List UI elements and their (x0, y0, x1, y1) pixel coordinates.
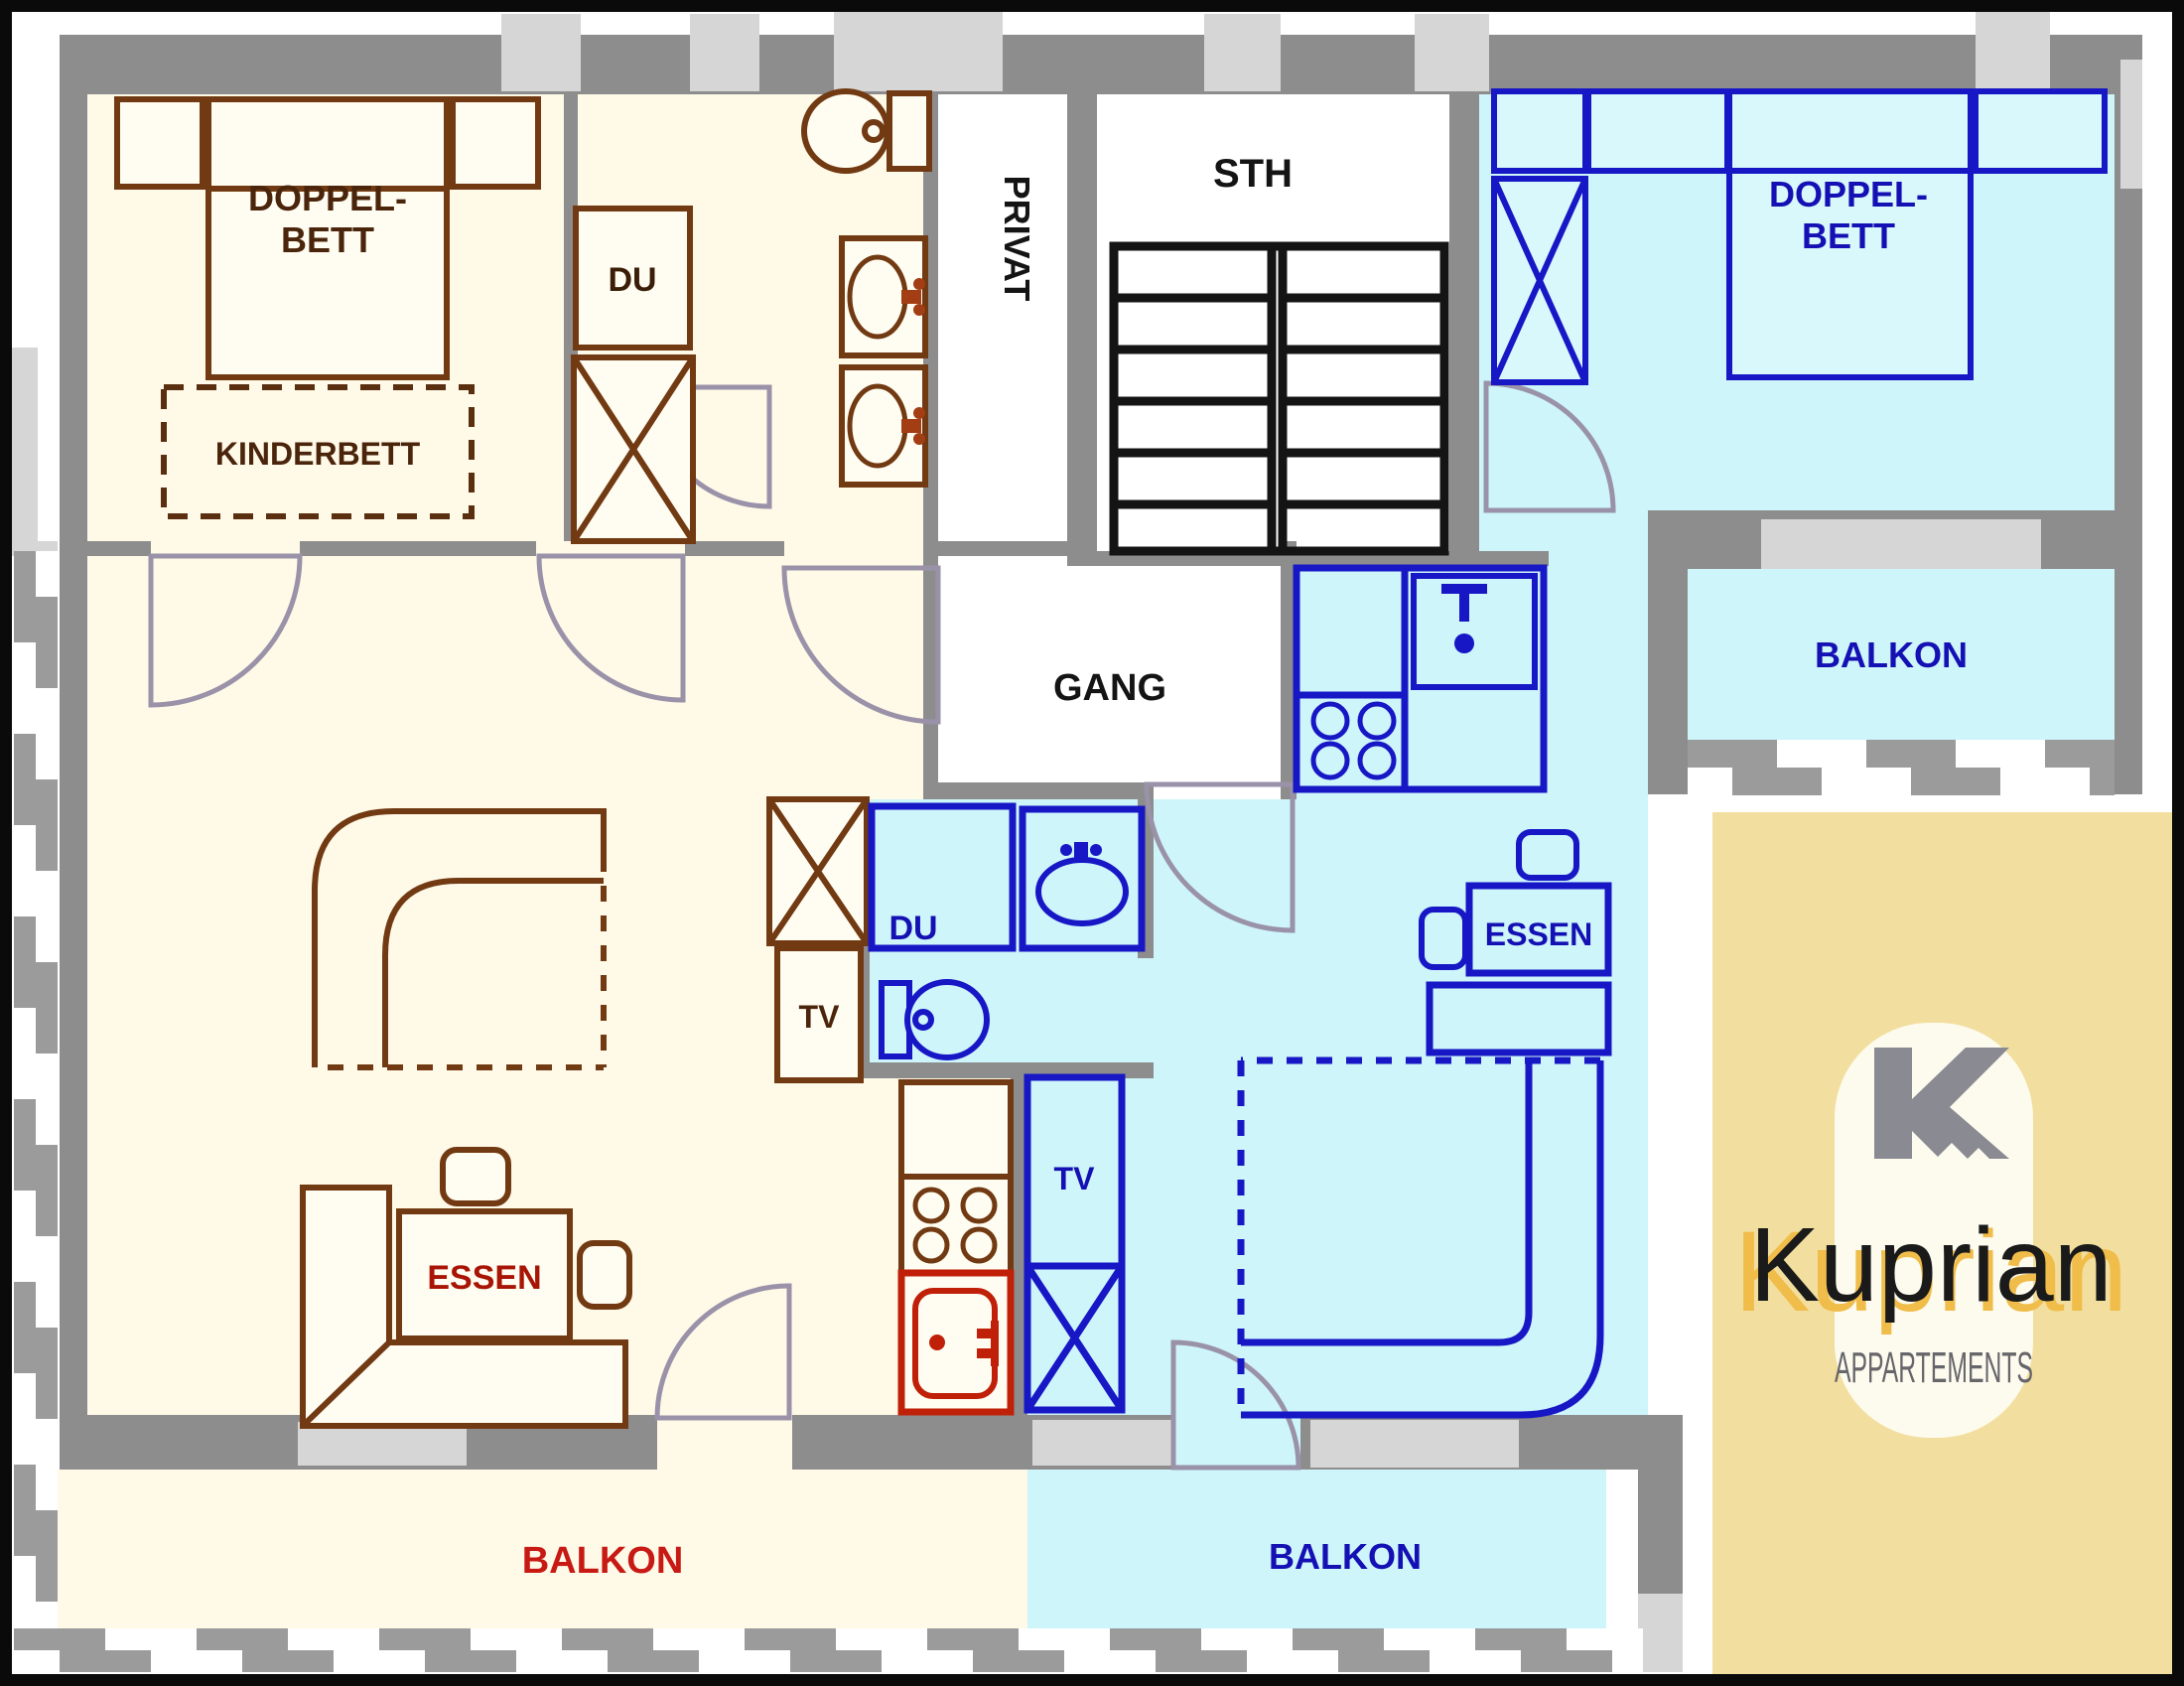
faucet-spout (901, 419, 921, 433)
balcony-door-gap-left (657, 1415, 792, 1470)
balcony-door-gap-right (1171, 1415, 1300, 1470)
kitchen-cabinet (901, 1082, 1011, 1177)
wall-privat-sth (1067, 94, 1097, 566)
window-bottom-3 (1310, 1420, 1519, 1468)
dining-label-left: ESSEN (427, 1259, 541, 1297)
wall-balcony-stub (1638, 1415, 1683, 1594)
kitchen-left (901, 1082, 1011, 1412)
shelf-icon (1494, 91, 1585, 171)
window-top-3 (834, 8, 1003, 91)
sink-drain (929, 1335, 945, 1350)
private-label: PRIVAT (997, 176, 1037, 302)
window-top-1 (501, 14, 581, 91)
stairs-steps-right (1283, 298, 1444, 504)
shared-labels: PRIVAT STH GANG (997, 152, 1293, 709)
faucet-knob (913, 407, 925, 419)
bench-icon (1430, 985, 1608, 1053)
wall-privat-bottom (938, 541, 1097, 556)
faucet-knob (913, 433, 925, 445)
stairwell-label: STH (1213, 152, 1293, 196)
faucet-body (1459, 584, 1469, 622)
window-right-1 (2120, 60, 2142, 189)
stove-icon (901, 1177, 1011, 1273)
chair-icon (580, 1243, 629, 1307)
shower-label-left: DU (608, 261, 656, 299)
faucet-body (991, 1321, 999, 1366)
faucet-knob (913, 278, 925, 290)
chair-icon (443, 1150, 508, 1203)
toilet-drain (915, 1012, 931, 1028)
faucet-spout (1074, 842, 1088, 862)
wall-top (60, 35, 2142, 94)
railing-bottom (14, 1628, 1643, 1672)
logo-subtitle: APPARTEMENTS (1835, 1343, 2033, 1392)
sink-left-2 (842, 367, 925, 485)
faucet-spout (901, 290, 921, 304)
wall-right (2115, 94, 2142, 794)
balcony-label-right-top: BALKON (1815, 634, 1968, 675)
balcony-label-right-bottom: BALKON (1269, 1536, 1422, 1577)
railing-left (14, 551, 58, 1628)
left-living-mid-floor (87, 799, 854, 1077)
corridor-label: GANG (1053, 667, 1166, 709)
wall-gang-bottom (923, 782, 1154, 799)
balcony-label-left: BALKON (522, 1540, 684, 1582)
sink-drain (1454, 633, 1474, 653)
faucet-knob (913, 304, 925, 316)
window-balcony-stub (1638, 1594, 1683, 1672)
wall-sth-bedroom (1449, 94, 1479, 554)
window-top-6 (1976, 10, 2050, 89)
floorplan-page: DOPPEL- BETT KINDERBETT DU (0, 0, 2184, 1686)
kitchen-unit (1297, 568, 1544, 789)
toilet-right (882, 982, 987, 1057)
wall-seg-b (300, 541, 536, 556)
floorplan-canvas: DOPPEL- BETT KINDERBETT DU (0, 0, 2184, 1686)
shelf-icon (1588, 91, 1727, 171)
kitchen-right (1297, 568, 1544, 789)
wardrobe-living-right (1027, 1266, 1122, 1410)
left-living-upper-floor (87, 541, 938, 799)
toilet-tank (889, 93, 929, 169)
wall-seg-a (87, 541, 151, 556)
nightstand-icon (453, 99, 538, 187)
crib-label: KINDERBETT (215, 436, 421, 472)
wardrobe-bath-left (574, 357, 693, 541)
left-bed-label-line2: BETT (281, 219, 374, 260)
window-top-5 (1415, 14, 1489, 91)
wall-balcony-left (1648, 569, 1688, 794)
wall-left (60, 94, 87, 1470)
faucet-knob (1090, 844, 1102, 856)
right-bed-label-line2: BETT (1802, 215, 1895, 256)
window-top-4 (1204, 14, 1281, 91)
logo-brand: Kuprian (1749, 1206, 2112, 1324)
right-bed-label-line1: DOPPEL- (1769, 174, 1928, 214)
nightstand-icon (117, 99, 203, 187)
tv-label-right: TV (1054, 1161, 1096, 1196)
stairs-steps-left (1114, 298, 1272, 504)
railing-balcony-top (1688, 740, 2115, 795)
window-bottom-2 (1032, 1420, 1171, 1466)
chair-icon (1519, 832, 1576, 878)
wall-seg-c (685, 541, 784, 556)
nightstand-icon (1976, 91, 2105, 171)
left-bed-label-line1: DOPPEL- (248, 178, 407, 218)
sink-left-1 (842, 238, 925, 355)
stairwell (1114, 246, 1444, 551)
stairs-divider (1272, 246, 1283, 551)
window-top-2 (690, 14, 759, 91)
toilet-drain (865, 122, 883, 140)
toilet-left (804, 91, 929, 171)
shower-label-right: DU (888, 910, 937, 947)
faucet-knob (1060, 844, 1072, 856)
tv-label-left: TV (799, 999, 841, 1035)
dining-label-right: ESSEN (1485, 916, 1592, 952)
wardrobe-living-left (769, 799, 867, 943)
window-balcony-top (1761, 519, 2041, 569)
chair-icon (1422, 910, 1465, 967)
logo: Kuprian Kuprian APPARTEMENTS (1712, 812, 2176, 1678)
